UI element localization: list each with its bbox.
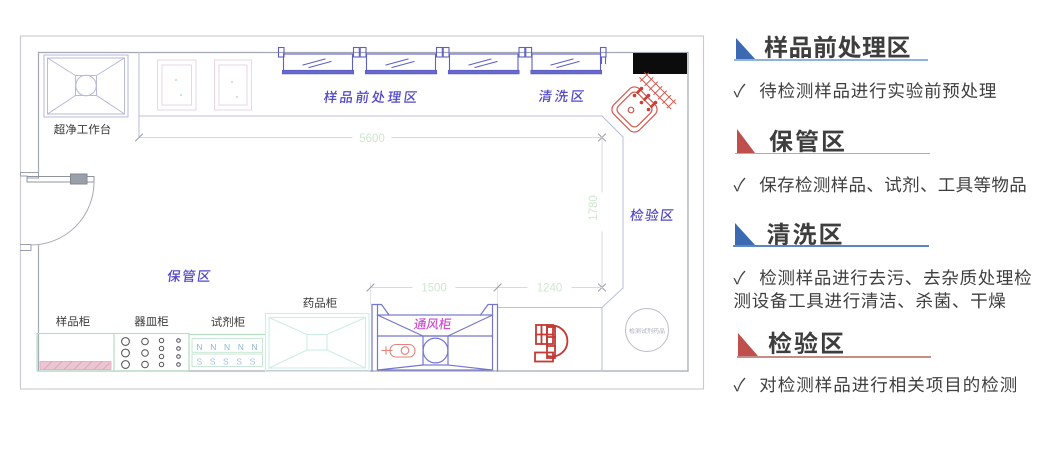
svg-text:SSSSS: SSSSS [197,357,263,367]
svg-text:检测试剂药品: 检测试剂药品 [629,327,665,335]
svg-text:NNNNN: NNNNN [197,342,266,352]
svg-text:器皿柜: 器皿柜 [134,316,169,329]
svg-text:药品柜: 药品柜 [303,297,338,310]
svg-text:样品前处理区: 样品前处理区 [323,90,421,105]
svg-text:5600: 5600 [359,133,385,145]
svg-text:样品柜: 样品柜 [56,316,91,329]
svg-text:保管区: 保管区 [166,269,213,284]
svg-text:1240: 1240 [537,283,563,295]
svg-text:1780: 1780 [588,195,600,221]
svg-text:试剂柜: 试剂柜 [211,316,246,329]
svg-text:1500: 1500 [421,283,447,295]
svg-text:检验区: 检验区 [629,208,676,223]
svg-text:清洗区: 清洗区 [538,89,588,104]
svg-text:通风柜: 通风柜 [413,318,453,332]
svg-text:超净工作台: 超净工作台 [54,124,112,137]
